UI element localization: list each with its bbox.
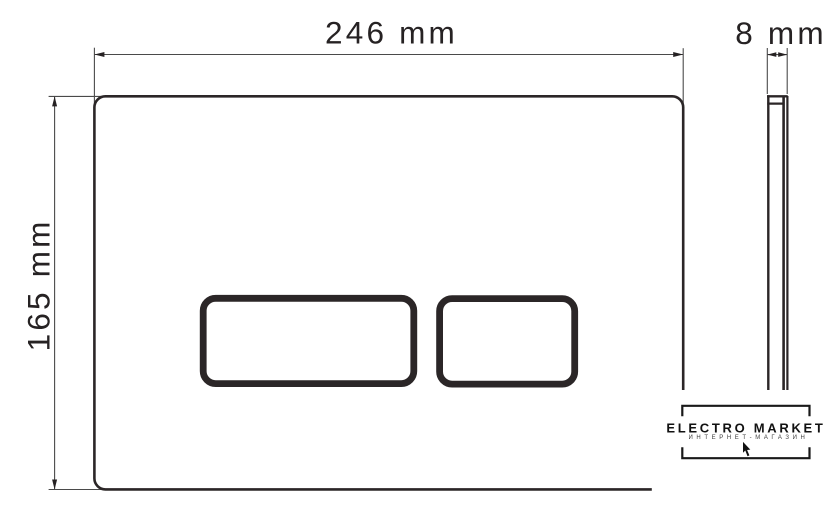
svg-text:8 mm: 8 mm: [735, 15, 827, 51]
svg-text:ELECTRO MARKET: ELECTRO MARKET: [666, 421, 825, 436]
svg-text:165 mm: 165 mm: [21, 218, 57, 351]
svg-text:ИНТЕРНЕТ-МАГАЗИН: ИНТЕРНЕТ-МАГАЗИН: [689, 435, 809, 441]
svg-text:246 mm: 246 mm: [325, 15, 458, 51]
